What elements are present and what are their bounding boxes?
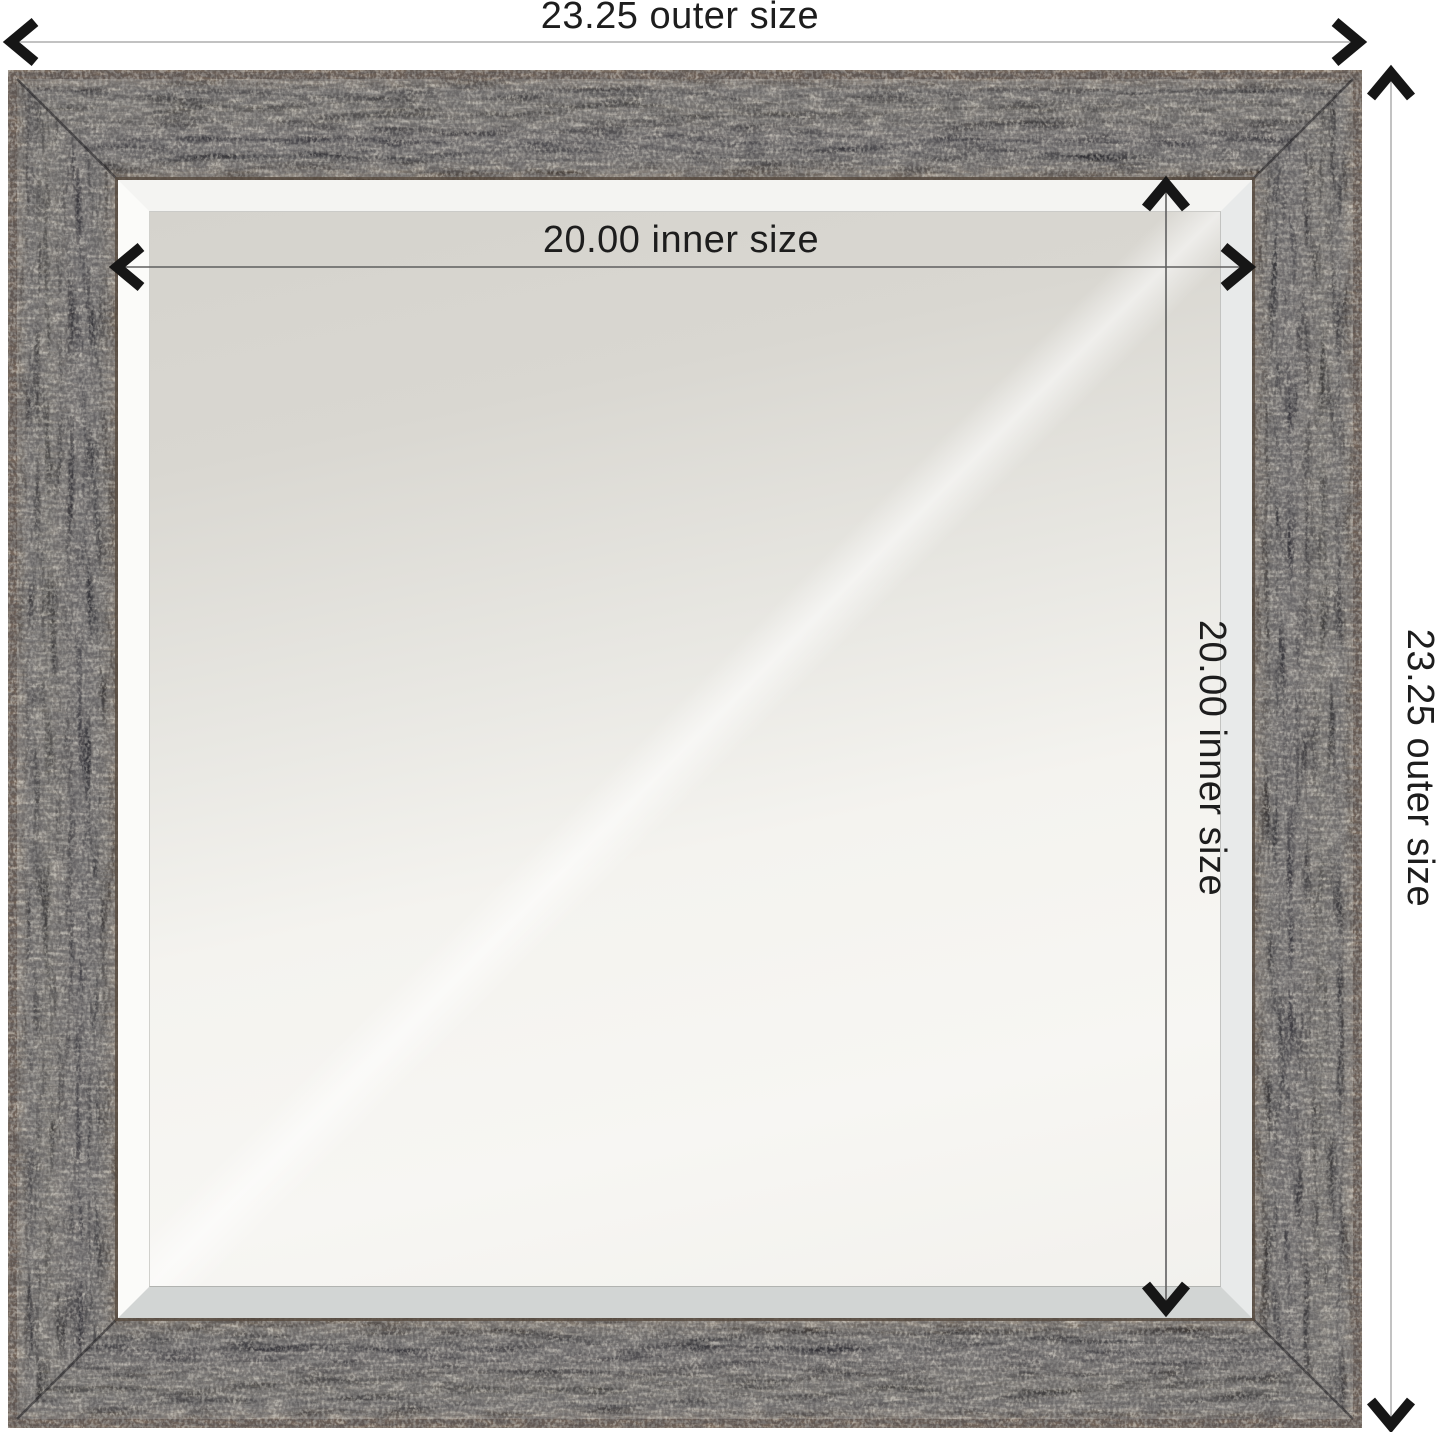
inner-height-label: 20.00 inner size — [1190, 620, 1234, 896]
mirror-bevel — [118, 180, 1252, 1318]
inner-width-label: 20.00 inner size — [543, 218, 819, 262]
mirror-frame — [8, 70, 1362, 1428]
arrow-right-icon — [1335, 22, 1359, 62]
arrow-down-icon — [1371, 1401, 1411, 1425]
arrow-left-icon — [11, 22, 35, 62]
product-dimension-diagram: 23.25 outer size 20.00 inner size 20.00 … — [0, 0, 1445, 1432]
outer-width-label: 23.25 outer size — [541, 0, 819, 38]
outer-height-label: 23.25 outer size — [1398, 629, 1442, 907]
mirror-face — [150, 212, 1220, 1286]
arrow-up-icon — [1371, 73, 1411, 97]
